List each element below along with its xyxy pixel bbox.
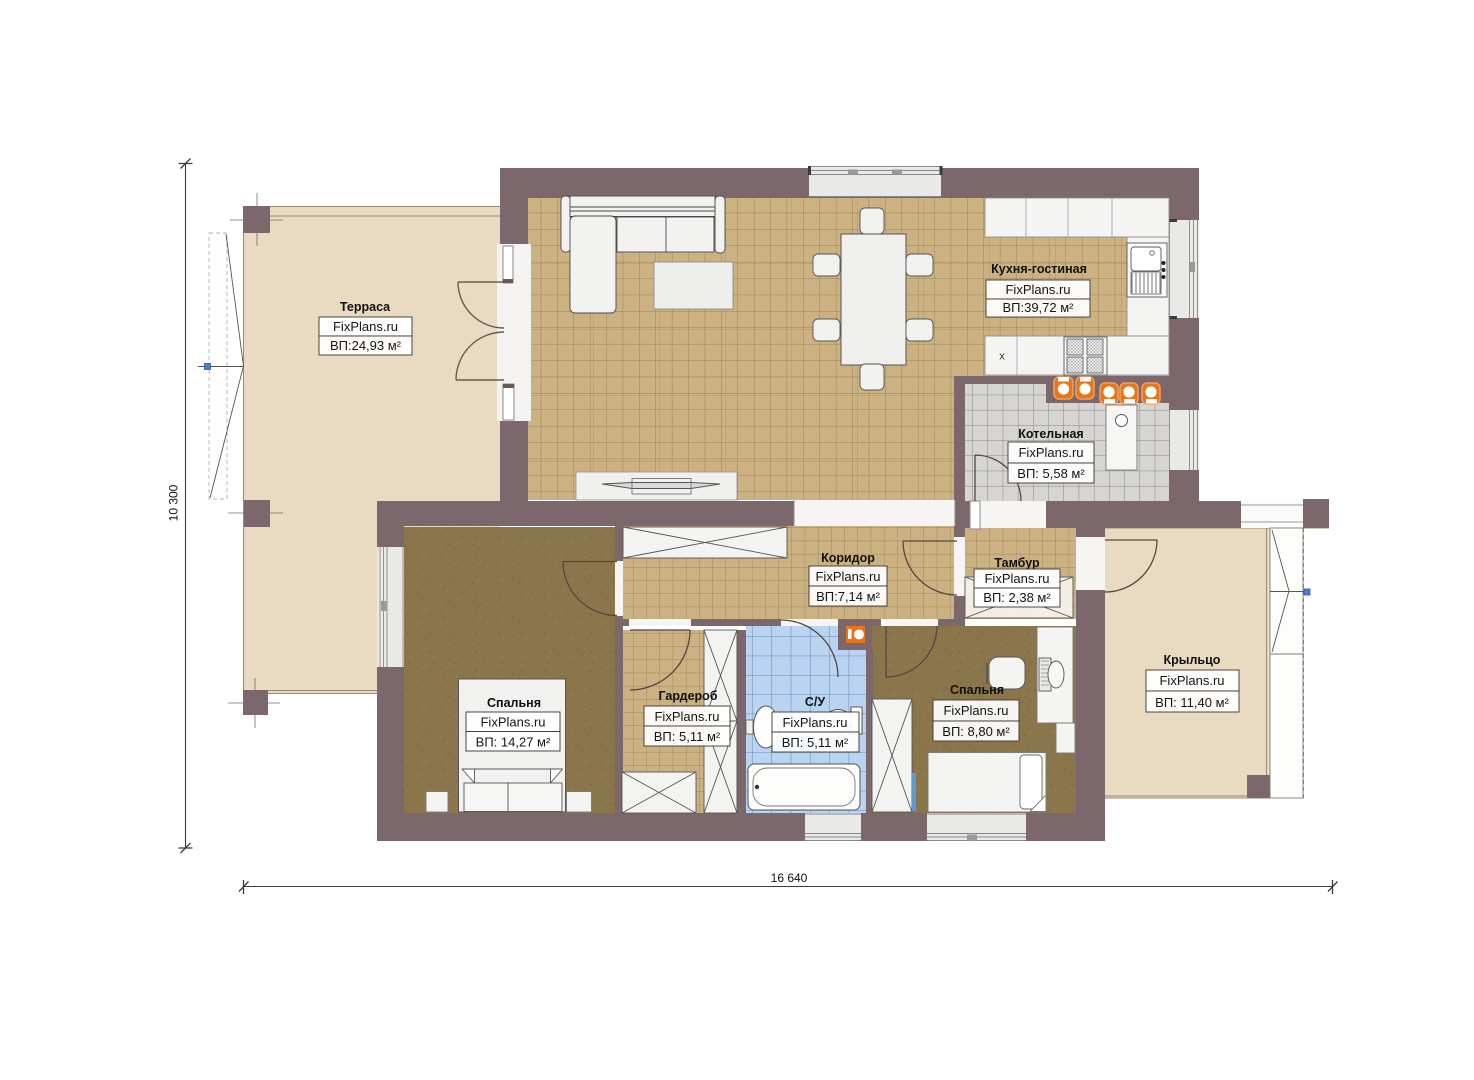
svg-text:Кухня-гостиная: Кухня-гостиная <box>991 262 1087 276</box>
svg-text:ВП: 8,80 м²: ВП: 8,80 м² <box>942 724 1010 739</box>
svg-text:FixPlans.ru: FixPlans.ru <box>654 709 719 724</box>
svg-text:FixPlans.ru: FixPlans.ru <box>815 569 880 584</box>
svg-text:ВП:7,14 м²: ВП:7,14 м² <box>816 589 880 604</box>
svg-text:x: x <box>999 351 1005 363</box>
svg-text:10 300: 10 300 <box>167 484 181 521</box>
svg-text:FixPlans.ru: FixPlans.ru <box>1005 282 1070 297</box>
svg-text:Спальня: Спальня <box>950 683 1004 697</box>
svg-text:С/У: С/У <box>805 695 826 709</box>
svg-text:ВП: 5,58 м²: ВП: 5,58 м² <box>1017 466 1085 481</box>
svg-text:Коридор: Коридор <box>821 551 875 565</box>
svg-text:FixPlans.ru: FixPlans.ru <box>1018 445 1083 460</box>
svg-text:ВП: 5,11 м²: ВП: 5,11 м² <box>654 729 721 744</box>
svg-text:FixPlans.ru: FixPlans.ru <box>1159 673 1224 688</box>
svg-text:ВП:24,93 м²: ВП:24,93 м² <box>330 338 402 353</box>
svg-text:ВП: 2,38 м²: ВП: 2,38 м² <box>983 590 1051 605</box>
svg-text:Крыльцо: Крыльцо <box>1164 653 1221 667</box>
svg-text:ВП:39,72 м²: ВП:39,72 м² <box>1002 300 1074 315</box>
svg-text:Спальня: Спальня <box>487 696 541 710</box>
svg-text:FixPlans.ru: FixPlans.ru <box>984 571 1049 586</box>
svg-text:16 640: 16 640 <box>771 871 808 885</box>
svg-text:FixPlans.ru: FixPlans.ru <box>333 319 398 334</box>
svg-text:ВП: 14,27 м²: ВП: 14,27 м² <box>476 735 551 750</box>
svg-text:Тамбур: Тамбур <box>994 556 1040 570</box>
svg-text:ВП: 11,40 м²: ВП: 11,40 м² <box>1155 695 1229 710</box>
svg-text:Терраса: Терраса <box>340 300 391 314</box>
svg-text:FixPlans.ru: FixPlans.ru <box>782 715 847 730</box>
svg-text:FixPlans.ru: FixPlans.ru <box>943 703 1008 718</box>
svg-text:Гардероб: Гардероб <box>658 689 717 703</box>
svg-text:Котельная: Котельная <box>1018 427 1083 441</box>
svg-text:ВП: 5,11 м²: ВП: 5,11 м² <box>782 735 849 750</box>
svg-text:FixPlans.ru: FixPlans.ru <box>480 715 545 730</box>
